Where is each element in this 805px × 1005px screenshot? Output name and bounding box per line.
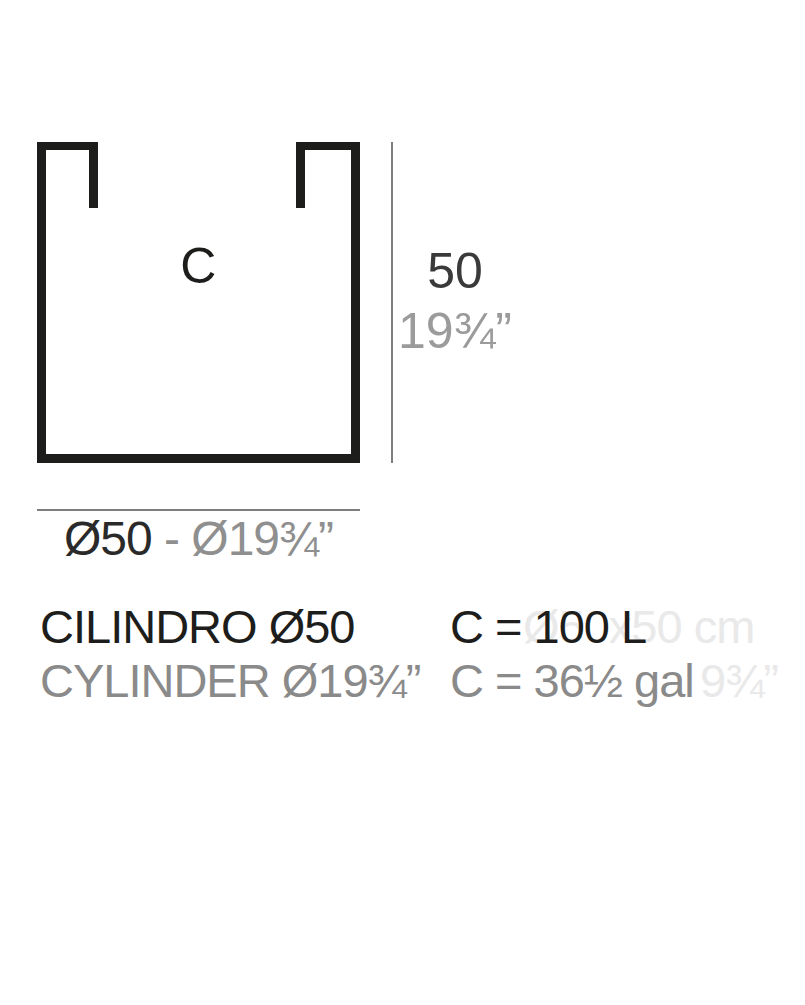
diameter-value-inches: Ø19¾”: [191, 512, 333, 565]
ghost-dimensions-inches: 9¾”: [700, 657, 778, 704]
capacity-gallons: C = 36½ gal: [450, 657, 694, 704]
vessel-right-wall: [351, 142, 360, 463]
vessel-inner-rim-right: [296, 142, 305, 208]
height-value-inches: 19¾”: [390, 306, 520, 356]
vessel-letter-label: C: [37, 241, 360, 291]
product-name-english: CYLINDER Ø19¾”: [40, 657, 420, 704]
height-dimension-line: [391, 142, 393, 463]
spec-sheet: C 50 19¾” Ø50 - Ø19¾” Ø50x50 cm 9¾” CILI…: [0, 0, 805, 1005]
product-name-spanish: CILINDRO Ø50: [40, 603, 354, 650]
capacity-liters: C = 100 L: [450, 603, 646, 650]
vessel-inner-rim-left: [89, 142, 98, 208]
diameter-dimension-line: [37, 509, 360, 511]
diameter-value-cm: Ø50: [64, 512, 152, 565]
vessel-top-lip-right: [296, 142, 360, 150]
diameter-separator: -: [152, 512, 192, 565]
height-value-cm: 50: [395, 246, 515, 296]
vessel-bottom-wall: [37, 454, 360, 463]
vessel-left-wall: [37, 142, 46, 463]
diameter-label: Ø50 - Ø19¾”: [37, 515, 360, 563]
